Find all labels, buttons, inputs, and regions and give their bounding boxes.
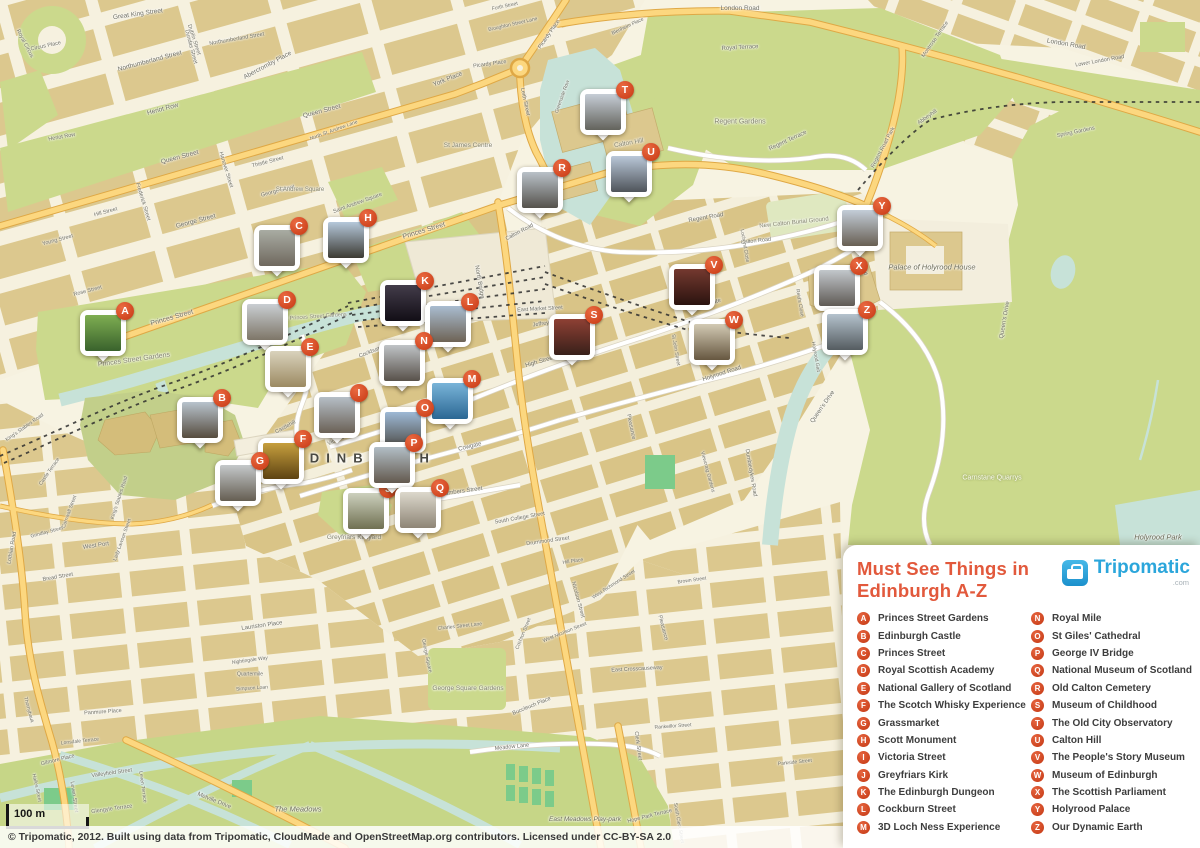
legend-letter-badge: X: [1031, 786, 1044, 799]
tripomatic-logo: Tripomatic .com: [1062, 558, 1190, 587]
legend-item-W: WMuseum of Edinburgh: [1031, 767, 1192, 784]
marker-photo: [554, 319, 590, 355]
legend-item-label: Greyfriars Kirk: [878, 770, 948, 781]
legend-item-label: Our Dynamic Earth: [1052, 822, 1143, 833]
marker-photo: [85, 315, 121, 351]
legend-letter-badge: F: [857, 699, 870, 712]
legend-letter-badge: N: [1031, 612, 1044, 625]
legend-item-H: HScott Monument: [857, 732, 1031, 749]
legend-letter-badge: Q: [1031, 664, 1044, 677]
legend-letter-badge: A: [857, 612, 870, 625]
poi-marker-T[interactable]: T: [580, 89, 626, 135]
legend-item-S: SMuseum of Childhood: [1031, 697, 1192, 714]
legend-title: Must See Things in Edinburgh A-Z: [857, 558, 1062, 602]
legend-item-label: Cockburn Street: [878, 804, 956, 815]
poi-marker-H[interactable]: H: [323, 217, 369, 263]
legend-item-label: The Edinburgh Dungeon: [878, 787, 995, 798]
legend-item-Q: QNational Museum of Scotland: [1031, 662, 1192, 679]
legend-item-label: 3D Loch Ness Experience: [878, 822, 1000, 833]
marker-photo: [842, 210, 878, 246]
poi-marker-J[interactable]: J: [343, 488, 389, 534]
legend-item-I: IVictoria Street: [857, 749, 1031, 766]
legend-letter-badge: L: [857, 803, 870, 816]
legend-item-Y: YHolyrood Palace: [1031, 801, 1192, 818]
marker-letter-badge: R: [553, 159, 571, 177]
marker-letter-badge: C: [290, 217, 308, 235]
marker-letter-badge: M: [463, 370, 481, 388]
legend-item-E: ENational Gallery of Scotland: [857, 680, 1031, 697]
legend-letter-badge: O: [1031, 630, 1044, 643]
marker-letter-badge: N: [415, 332, 433, 350]
legend-item-label: St Giles' Cathedral: [1052, 631, 1141, 642]
marker-letter-badge: F: [294, 430, 312, 448]
poi-marker-P[interactable]: P: [369, 442, 415, 488]
legend-letter-badge: E: [857, 682, 870, 695]
poi-marker-R[interactable]: R: [517, 167, 563, 213]
marker-photo: [385, 285, 421, 321]
logo-name: Tripomatic: [1094, 558, 1190, 577]
poi-marker-X[interactable]: X: [814, 265, 860, 311]
legend-item-label: Museum of Childhood: [1052, 700, 1157, 711]
legend-item-N: NRoyal Mile: [1031, 610, 1192, 627]
legend-item-F: FThe Scotch Whisky Experience: [857, 697, 1031, 714]
legend-item-label: Princes Street: [878, 648, 945, 659]
marker-photo: [827, 314, 863, 350]
poi-marker-C[interactable]: C: [254, 225, 300, 271]
poi-marker-V[interactable]: V: [669, 264, 715, 310]
marker-letter-badge: A: [116, 302, 134, 320]
legend-item-label: George IV Bridge: [1052, 648, 1134, 659]
legend-item-P: PGeorge IV Bridge: [1031, 645, 1192, 662]
legend-item-label: The Scottish Parliament: [1052, 787, 1166, 798]
legend-item-V: VThe People's Story Museum: [1031, 749, 1192, 766]
legend-header: Must See Things in Edinburgh A-Z Tripoma…: [843, 545, 1200, 602]
marker-letter-badge: E: [301, 338, 319, 356]
marker-letter-badge: I: [350, 384, 368, 402]
marker-letter-badge: G: [251, 452, 269, 470]
marker-photo: [328, 222, 364, 258]
legend-letter-badge: Y: [1031, 803, 1044, 816]
poi-marker-Z[interactable]: Z: [822, 309, 868, 355]
legend-letter-badge: T: [1031, 717, 1044, 730]
legend-item-label: Grassmarket: [878, 718, 939, 729]
marker-photo: [259, 230, 295, 266]
marker-letter-badge: O: [416, 399, 434, 417]
legend-letter-badge: W: [1031, 769, 1044, 782]
legend-letter-badge: D: [857, 664, 870, 677]
legend-item-label: Edinburgh Castle: [878, 631, 961, 642]
poi-marker-E[interactable]: E: [265, 346, 311, 392]
legend-letter-badge: K: [857, 786, 870, 799]
scale-label: 100 m: [9, 804, 89, 824]
legend-item-R: ROld Calton Cemetery: [1031, 680, 1192, 697]
marker-letter-badge: L: [461, 293, 479, 311]
marker-letter-badge: T: [616, 81, 634, 99]
poi-marker-Q[interactable]: Q: [395, 487, 441, 533]
legend-letter-badge: R: [1031, 682, 1044, 695]
poi-marker-N[interactable]: N: [379, 340, 425, 386]
legend-item-T: TThe Old City Observatory: [1031, 714, 1192, 731]
legend-item-label: Princes Street Gardens: [878, 613, 989, 624]
legend-item-A: APrinces Street Gardens: [857, 610, 1031, 627]
legend-item-label: Victoria Street: [878, 752, 946, 763]
legend-item-C: CPrinces Street: [857, 645, 1031, 662]
poi-marker-Y[interactable]: Y: [837, 205, 883, 251]
marker-letter-badge: Q: [431, 479, 449, 497]
legend-item-label: Calton Hill: [1052, 735, 1101, 746]
poi-marker-S[interactable]: S: [549, 314, 595, 360]
suitcase-icon: [1062, 560, 1088, 586]
legend-column: APrinces Street GardensBEdinburgh Castle…: [857, 610, 1031, 836]
legend-item-L: LCockburn Street: [857, 801, 1031, 818]
logo-tld: .com: [1173, 578, 1189, 587]
legend-letter-badge: B: [857, 630, 870, 643]
legend-item-X: XThe Scottish Parliament: [1031, 784, 1192, 801]
legend-item-K: KThe Edinburgh Dungeon: [857, 784, 1031, 801]
poi-marker-I[interactable]: I: [314, 392, 360, 438]
marker-letter-badge: Y: [873, 197, 891, 215]
legend-item-label: Scott Monument: [878, 735, 956, 746]
marker-photo: [522, 172, 558, 208]
poi-marker-U[interactable]: U: [606, 151, 652, 197]
marker-photo: [319, 397, 355, 433]
legend-letter-badge: M: [857, 821, 870, 834]
marker-photo: [674, 269, 710, 305]
marker-letter-badge: Z: [858, 301, 876, 319]
marker-photo: [247, 304, 283, 340]
marker-photo: [348, 493, 384, 529]
marker-photo: [694, 324, 730, 360]
marker-photo: [270, 351, 306, 387]
marker-letter-badge: S: [585, 306, 603, 324]
marker-photo: [611, 156, 647, 192]
poi-marker-W[interactable]: W: [689, 319, 735, 365]
legend-item-D: DRoyal Scottish Academy: [857, 662, 1031, 679]
legend-item-label: Holyrood Palace: [1052, 804, 1130, 815]
marker-letter-badge: U: [642, 143, 660, 161]
legend-item-M: M3D Loch Ness Experience: [857, 819, 1031, 836]
marker-letter-badge: P: [405, 434, 423, 452]
marker-photo: [374, 447, 410, 483]
marker-letter-badge: X: [850, 257, 868, 275]
legend-columns: APrinces Street GardensBEdinburgh Castle…: [843, 602, 1200, 836]
legend-panel: Must See Things in Edinburgh A-Z Tripoma…: [843, 545, 1200, 848]
poi-marker-M[interactable]: M: [427, 378, 473, 424]
legend-letter-badge: I: [857, 751, 870, 764]
marker-photo: [819, 270, 855, 306]
marker-photo: [182, 402, 218, 438]
marker-letter-badge: B: [213, 389, 231, 407]
legend-item-label: National Gallery of Scotland: [878, 683, 1011, 694]
marker-photo: [430, 306, 466, 342]
legend-letter-badge: Z: [1031, 821, 1044, 834]
poi-marker-K[interactable]: K: [380, 280, 426, 326]
poi-marker-B[interactable]: B: [177, 397, 223, 443]
map-canvas: Great King StreetNorthumberland StreetNo…: [0, 0, 1200, 848]
legend-letter-badge: S: [1031, 699, 1044, 712]
legend-item-label: National Museum of Scotland: [1052, 665, 1192, 676]
marker-letter-badge: W: [725, 311, 743, 329]
legend-item-label: The People's Story Museum: [1052, 752, 1185, 763]
legend-letter-badge: C: [857, 647, 870, 660]
legend-letter-badge: J: [857, 769, 870, 782]
marker-letter-badge: K: [416, 272, 434, 290]
marker-photo: [585, 94, 621, 130]
marker-photo: [432, 383, 468, 419]
marker-letter-badge: H: [359, 209, 377, 227]
marker-photo: [384, 345, 420, 381]
legend-column: NRoyal MileOSt Giles' CathedralPGeorge I…: [1031, 610, 1192, 836]
legend-item-label: Museum of Edinburgh: [1052, 770, 1158, 781]
legend-item-label: The Scotch Whisky Experience: [878, 700, 1026, 711]
legend-item-label: Royal Mile: [1052, 613, 1101, 624]
legend-letter-badge: G: [857, 717, 870, 730]
marker-photo: [220, 465, 256, 501]
poi-marker-D[interactable]: D: [242, 299, 288, 345]
legend-item-J: JGreyfriars Kirk: [857, 767, 1031, 784]
legend-item-U: UCalton Hill: [1031, 732, 1192, 749]
legend-item-label: The Old City Observatory: [1052, 718, 1173, 729]
marker-letter-badge: D: [278, 291, 296, 309]
legend-letter-badge: P: [1031, 647, 1044, 660]
legend-letter-badge: H: [857, 734, 870, 747]
legend-item-label: Royal Scottish Academy: [878, 665, 994, 676]
marker-letter-badge: V: [705, 256, 723, 274]
legend-item-G: GGrassmarket: [857, 714, 1031, 731]
legend-item-O: OSt Giles' Cathedral: [1031, 627, 1192, 644]
legend-item-label: Old Calton Cemetery: [1052, 683, 1151, 694]
poi-marker-A[interactable]: A: [80, 310, 126, 356]
logo-text: Tripomatic .com: [1094, 558, 1190, 587]
poi-marker-G[interactable]: G: [215, 460, 261, 506]
legend-letter-badge: V: [1031, 751, 1044, 764]
legend-item-B: BEdinburgh Castle: [857, 627, 1031, 644]
legend-item-Z: ZOur Dynamic Earth: [1031, 819, 1192, 836]
legend-letter-badge: U: [1031, 734, 1044, 747]
marker-photo: [400, 492, 436, 528]
